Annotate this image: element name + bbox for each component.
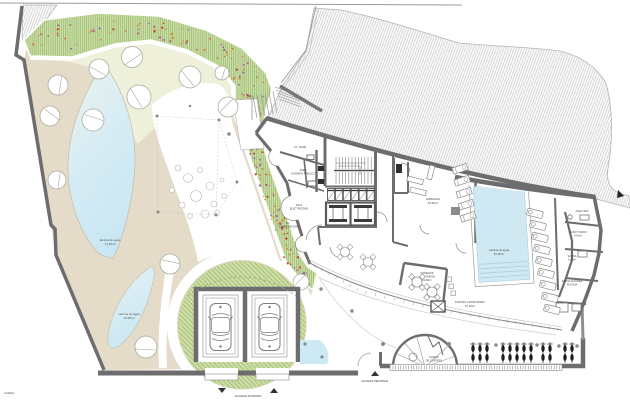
svg-text:ACCESO RODADO: ACCESO RODADO bbox=[235, 394, 262, 398]
svg-text:INSTALACIONES: INSTALACIONES bbox=[562, 279, 583, 283]
svg-text:5.10m²: 5.10m² bbox=[568, 258, 576, 262]
svg-text:57.00m²: 57.00m² bbox=[494, 252, 504, 256]
svg-text:22.98m²: 22.98m² bbox=[422, 279, 431, 282]
svg-text:ACERA: ACERA bbox=[4, 391, 14, 395]
svg-text:CLIMATIZACION: CLIMATIZACION bbox=[278, 226, 297, 229]
svg-text:74.30m²: 74.30m² bbox=[104, 242, 115, 246]
svg-text:DE CONTROL: DE CONTROL bbox=[426, 360, 443, 363]
svg-text:47.40m²: 47.40m² bbox=[465, 304, 475, 308]
svg-text:CL. HIDR: CL. HIDR bbox=[294, 145, 306, 149]
svg-text:PISCINA: PISCINA bbox=[567, 283, 578, 287]
svg-text:ASEO SPA: ASEO SPA bbox=[576, 209, 589, 213]
svg-text:4.10m²: 4.10m² bbox=[574, 234, 582, 238]
svg-text:23.95m²: 23.95m² bbox=[123, 316, 134, 320]
svg-text:ELECTRICIDAD: ELECTRICIDAD bbox=[290, 208, 309, 211]
svg-text:HORARIO PÚBLICO: HORARIO PÚBLICO bbox=[291, 173, 314, 176]
svg-text:SAUNA: SAUNA bbox=[568, 254, 577, 258]
svg-text:ACCESO PEATONAL: ACCESO PEATONAL bbox=[361, 379, 389, 383]
svg-text:63.60m²: 63.60m² bbox=[428, 201, 438, 205]
